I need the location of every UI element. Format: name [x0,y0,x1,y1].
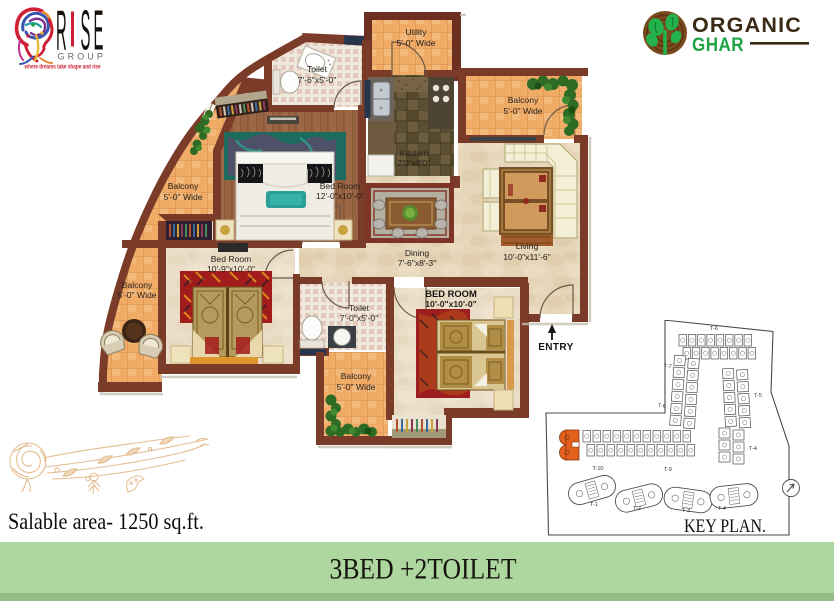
svg-text:5'-0" Wide: 5'-0" Wide [117,290,156,300]
svg-text:where dreams take shape and ri: where dreams take shape and rise [24,65,101,71]
svg-text:5'-0" Wide: 5'-0" Wide [163,192,202,202]
svg-text:T-5: T-5 [754,393,762,399]
svg-text:7'-0"x5'-0": 7'-0"x5'-0" [340,313,379,323]
svg-text:T-6: T-6 [710,326,718,332]
svg-text:5'-0" Wide: 5'-0" Wide [336,382,375,392]
svg-text:T-3: T-3 [682,508,690,514]
svg-text:Balcony: Balcony [508,95,539,105]
svg-text:T-9: T-9 [664,467,672,473]
svg-text:Balcony: Balcony [341,371,372,381]
svg-text:3BED +2TOILET: 3BED +2TOILET [330,553,517,586]
svg-text:T-2: T-2 [633,506,641,512]
svg-text:7'-6"x8'-3": 7'-6"x8'-3" [398,258,437,268]
svg-text:T-8: T-8 [658,403,666,410]
svg-text:Balcony: Balcony [168,181,199,191]
svg-text:Bed Room: Bed Room [320,181,361,191]
svg-text:10'-0"x10'-0": 10'-0"x10'-0" [425,299,476,309]
svg-text:Dining: Dining [405,248,430,258]
svg-text:7'0"x8'0": 7'0"x8'0" [398,158,431,168]
svg-text:Toilet: Toilet [307,64,328,74]
svg-text:12'-0"x10'-0": 12'-0"x10'-0" [316,191,364,201]
svg-text:ENTRY: ENTRY [538,342,574,353]
svg-text:T-4: T-4 [749,446,757,452]
svg-text:5'-0" Wide: 5'-0" Wide [503,106,542,116]
svg-text:T-1: T-1 [590,502,598,508]
svg-text:7'-6"x5'-0": 7'-6"x5'-0" [298,75,337,85]
svg-text:GHAR: GHAR [692,35,744,56]
svg-text:BED ROOM: BED ROOM [425,288,477,299]
svg-text:5'-0" Wide: 5'-0" Wide [396,38,435,48]
svg-text:10'-9"x10'-0": 10'-9"x10'-0" [207,264,255,274]
svg-text:Toilet: Toilet [349,303,370,313]
svg-text:KEY PLAN.: KEY PLAN. [684,516,766,537]
svg-text:T-10: T-10 [592,466,603,472]
svg-text:10'-0"x11'-6": 10'-0"x11'-6" [503,252,550,262]
svg-text:Salable area- 1250 sq.ft.: Salable area- 1250 sq.ft. [8,509,204,534]
svg-text:GROUP: GROUP [58,52,107,62]
svg-text:Living: Living [516,241,539,251]
svg-text:T-4: T-4 [718,506,726,512]
svg-text:ORGANIC: ORGANIC [692,13,802,37]
svg-text:Utility: Utility [405,27,427,37]
svg-text:T-7: T-7 [664,363,672,370]
svg-text:Kitchen: Kitchen [400,148,429,158]
svg-text:Bed Room: Bed Room [211,254,252,264]
svg-text:Balcony: Balcony [122,280,153,290]
